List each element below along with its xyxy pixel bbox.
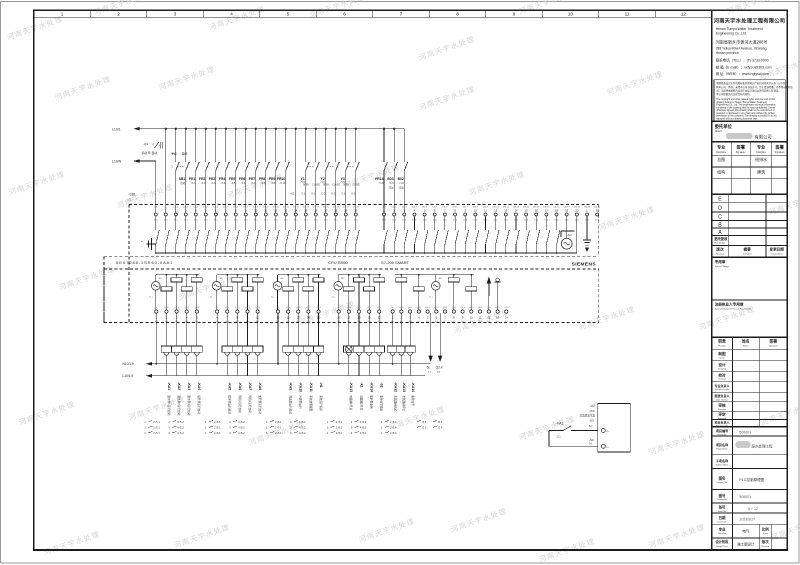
svg-text:DIa.10: DIa.10 — [273, 206, 280, 208]
svg-text:邮 箱（E-mail）：xxtyscl@163.com: 邮 箱（E-mail）：xxtyscl@163.com — [716, 64, 772, 69]
svg-text:D: D — [718, 206, 722, 212]
svg-text:20: 20 — [354, 209, 357, 213]
svg-text:-KA1: -KA1 — [556, 422, 563, 426]
svg-text:N.1: N.1 — [479, 321, 482, 323]
svg-text:Sheet No.: Sheet No. — [718, 510, 727, 513]
svg-text:污泥泵运行: 污泥泵运行 — [299, 395, 303, 409]
svg-text:次氯酸发生器: 次氯酸发生器 — [579, 413, 595, 417]
svg-text:N.1: N.1 — [426, 321, 429, 323]
svg-text:DIa.15: DIa.15 — [323, 206, 330, 208]
svg-text:审定: 审定 — [718, 412, 726, 417]
svg-text:DIa.9: DIa.9 — [263, 206, 269, 208]
svg-text:N.1: N.1 — [496, 321, 499, 323]
svg-text:/3.10: /3.10 — [280, 182, 286, 185]
svg-text:结构: 结构 — [717, 169, 725, 175]
svg-text:Discipline Leader: Discipline Leader — [715, 388, 730, 391]
svg-text:-KA6: -KA6 — [238, 382, 242, 390]
svg-text:2 /5.1: 2 /5.1 — [336, 426, 343, 430]
svg-text:-KA5: -KA5 — [228, 382, 232, 390]
svg-text:电磁阀2开关: 电磁阀2开关 — [359, 395, 363, 410]
svg-text:E: E — [718, 197, 722, 203]
svg-text:5: 5 — [287, 12, 290, 17]
svg-text:图号: 图号 — [719, 493, 726, 498]
svg-text:500001: 500001 — [739, 495, 751, 499]
svg-text:500001: 500001 — [739, 431, 751, 435]
svg-text:更改复核: 更改复核 — [714, 236, 728, 241]
svg-text:Discipline: Discipline — [716, 152, 727, 154]
svg-text:OPEN: OPEN — [323, 184, 330, 186]
svg-text:DIa.2: DIa.2 — [193, 206, 199, 208]
svg-text:Engineering Co., Ltd. The pro: Engineering Co., Ltd. The proprietary te… — [716, 104, 776, 107]
svg-text:专业负责人: 专业负责人 — [714, 383, 730, 388]
svg-text:C: C — [718, 214, 722, 220]
svg-text:-KA11: -KA11 — [309, 382, 313, 392]
svg-text:11: 11 — [484, 209, 487, 213]
svg-text:-SB1: -SB1 — [129, 193, 136, 197]
svg-text:潜水泵1运行启动: 潜水泵1运行启动 — [167, 395, 171, 416]
svg-text:/3.1: /3.1 — [191, 182, 196, 185]
svg-text:B03: B03 — [387, 177, 393, 181]
svg-text:N: N — [596, 209, 598, 213]
svg-text:/3.3: /3.3 — [211, 182, 216, 185]
svg-text:OPEN: OPEN — [343, 184, 350, 186]
svg-text:provided or disclosed to any t: provided or disclosed to any third party… — [716, 112, 775, 115]
svg-text:12: 12 — [487, 316, 490, 320]
svg-text:17: 17 — [545, 209, 548, 213]
svg-text:RD: RD — [439, 278, 443, 280]
svg-text:项目名称: 项目名称 — [716, 442, 729, 447]
svg-text:L10/1: L10/1 — [112, 127, 121, 131]
svg-text:C-3: C-3 — [341, 192, 346, 195]
svg-text:L10/1.9: L10/1.9 — [123, 374, 134, 378]
svg-text:FR6: FR6 — [239, 177, 246, 181]
svg-text:DIb.0: DIb.0 — [392, 206, 398, 208]
svg-text:2 /5.1: 2 /5.1 — [153, 431, 160, 435]
svg-text:电气: 电气 — [742, 529, 750, 534]
svg-text:签署: 签署 — [769, 339, 778, 344]
svg-text:N.1: N.1 — [417, 321, 420, 323]
svg-text:2 /5.1: 2 /5.1 — [275, 426, 282, 430]
svg-text:Engineering Co.,Ltd.: Engineering Co.,Ltd. — [716, 32, 747, 36]
svg-text:2 /5.1: 2 /5.1 — [275, 420, 282, 424]
svg-text:10: 10 — [470, 316, 473, 320]
svg-text:-KA13: -KA13 — [349, 382, 353, 392]
svg-text:Henan Tianyu Water Treatment: Henan Tianyu Water Treatment — [716, 27, 763, 31]
svg-text:Discipline: Discipline — [756, 152, 767, 154]
svg-text:18: 18 — [334, 209, 337, 213]
svg-text:FR1: FR1 — [189, 177, 196, 181]
svg-text:DIb.2: DIb.2 — [412, 206, 418, 208]
svg-text:部室负责人: 部室负责人 — [714, 393, 730, 398]
svg-text:河南省新乡市黄河大道288号: 河南省新乡市黄河大道288号 — [716, 38, 768, 44]
svg-text:Designed: Designed — [718, 368, 726, 370]
svg-text:联系电话（TEL）：(T) 3733 0000: 联系电话（TEL）：(T) 3733 0000 — [716, 58, 769, 63]
svg-text:签署: 签署 — [774, 144, 784, 151]
svg-text:图名: 图名 — [719, 476, 726, 481]
svg-text:4 /5.2: 4 /5.2 — [238, 431, 245, 435]
svg-text:12: 12 — [494, 209, 497, 213]
svg-text:次氯酸钠停止: 次氯酸钠停止 — [402, 395, 406, 411]
svg-text:Client: Client — [715, 129, 722, 133]
svg-text:专业: 专业 — [717, 144, 726, 151]
svg-text:DIa.6: DIa.6 — [233, 206, 239, 208]
svg-text:2 /5.1: 2 /5.1 — [153, 426, 160, 430]
svg-text:4 /5.2: 4 /5.2 — [360, 431, 367, 435]
svg-text:RD: RD — [220, 278, 224, 280]
svg-text:废水处理工程: 废水处理工程 — [752, 443, 773, 448]
svg-text:10: 10 — [568, 12, 574, 17]
svg-text:DIb.18: DIb.18 — [574, 206, 581, 208]
svg-text:校对: 校对 — [718, 372, 726, 377]
svg-text:Special Stamp: Special Stamp — [715, 265, 730, 268]
svg-text:审核: 审核 — [718, 403, 726, 408]
svg-text:-X2: -X2 — [290, 191, 295, 195]
svg-text:/1.8: /1.8 — [400, 182, 405, 185]
svg-text:Sum ject: Sum ject — [743, 253, 752, 256]
svg-text:变更日期: 变更日期 — [770, 247, 785, 252]
svg-text:职责: 职责 — [718, 339, 726, 344]
svg-text:/5.5: /5.5 — [422, 426, 427, 430]
svg-text:N.1: N.1 — [444, 321, 447, 323]
svg-text:-KA9: -KA9 — [289, 382, 293, 390]
svg-text:DIa.8: DIa.8 — [253, 206, 259, 208]
svg-text:FR10: FR10 — [277, 177, 285, 181]
svg-text:10: 10 — [474, 209, 477, 213]
svg-text:Project Name: Project Name — [716, 447, 727, 450]
svg-text:Drawn: Drawn — [719, 356, 724, 359]
svg-text:-KA14: -KA14 — [370, 382, 374, 392]
svg-text:O-1: O-1 — [311, 192, 316, 195]
svg-text:N.1: N.1 — [461, 321, 464, 323]
svg-text:-S3: -S3 — [589, 438, 594, 442]
svg-text:RD: RD — [159, 278, 163, 280]
svg-text:Q2.4: Q2.4 — [436, 366, 443, 370]
svg-text:RD: RD — [281, 278, 285, 280]
svg-text:电磁阀1开关: 电磁阀1开关 — [349, 395, 353, 410]
svg-text:给排水: 给排水 — [755, 156, 767, 162]
svg-text:N10/1.9: N10/1.9 — [123, 362, 134, 366]
svg-text:/3.8: /3.8 — [379, 182, 384, 185]
svg-text:子项名称: 子项名称 — [716, 458, 729, 463]
svg-text:13: 13 — [504, 209, 507, 213]
svg-text:设计: 设计 — [718, 362, 726, 367]
svg-text:网 址（WEB）：www.hgtyscl.com: 网 址（WEB）：www.hgtyscl.com — [716, 71, 769, 76]
svg-text:委托单位: 委托单位 — [715, 123, 733, 130]
svg-text:/3.7: /3.7 — [251, 182, 256, 185]
svg-text:Signature: Signature — [769, 345, 779, 348]
svg-text:8: 8 — [456, 12, 459, 17]
svg-text:1: 1 — [61, 12, 64, 17]
svg-text:4 /5.2: 4 /5.2 — [299, 420, 306, 424]
svg-text:本图纸及设计文件的版权和其他知识产权归河南天宇水处（以下简: 本图纸及设计文件的版权和其他知识产权归河南天宇水处（以下简 — [716, 81, 786, 85]
svg-text:14: 14 — [515, 209, 518, 213]
svg-text:permission of the company. The: permission of the company. The drawing i… — [716, 115, 777, 118]
svg-text:Project No.: Project No. — [717, 434, 727, 437]
svg-text:14: 14 — [505, 316, 508, 320]
svg-text:Revision: Revision — [762, 546, 769, 548]
svg-text:潜水泵2运行启动: 潜水泵2运行启动 — [177, 395, 181, 416]
svg-text:CLOSE: CLOSE — [332, 184, 340, 186]
svg-text:15: 15 — [304, 209, 307, 213]
svg-text:DIa.17: DIa.17 — [343, 206, 350, 208]
svg-text:DIb.7: DIb.7 — [463, 206, 469, 208]
svg-text:次氯酸钠启动: 次氯酸钠启动 — [394, 395, 398, 411]
svg-text:2 /5.1: 2 /5.1 — [153, 420, 160, 424]
svg-text:回流泵运行启动: 回流泵运行启动 — [289, 395, 293, 414]
svg-text:DIb.16: DIb.16 — [553, 206, 560, 208]
svg-text:RD: RD — [341, 278, 345, 280]
svg-text:摘要: 摘要 — [744, 247, 752, 252]
svg-text:/5.5: /5.5 — [422, 420, 427, 424]
svg-text:DIa.14: DIa.14 — [313, 206, 320, 208]
svg-text:11: 11 — [264, 209, 267, 213]
svg-text:DIb.20: DIb.20 — [594, 206, 601, 208]
svg-text:13: 13 — [496, 316, 499, 320]
svg-text:+: + — [141, 239, 143, 243]
svg-text:/3.4: /3.4 — [221, 182, 226, 185]
svg-text:2 /5.1: 2 /5.1 — [336, 420, 343, 424]
svg-text:姓名: 姓名 — [741, 339, 750, 344]
svg-text:C-2: C-2 — [321, 192, 326, 195]
svg-text:2 /5.1: 2 /5.1 — [214, 426, 221, 430]
svg-text:O-3: O-3 — [351, 192, 356, 195]
svg-text:4 /5.2: 4 /5.2 — [238, 420, 245, 424]
svg-text:Subitem Name: Subitem Name — [716, 464, 729, 467]
svg-text:2 /5.4: 2 /5.4 — [390, 426, 397, 430]
svg-text:专用章: 专用章 — [715, 259, 726, 264]
svg-text:Issued Date: Issued Date — [771, 253, 783, 256]
svg-text:式、手段将本图纸内容用于本设计项目以外的其他工程项目。: 式、手段将本图纸内容用于本设计项目以外的其他工程项目。 — [716, 88, 781, 92]
svg-text:浮球: 浮球 — [389, 185, 395, 189]
svg-text:2023/5/27: 2023/5/27 — [739, 518, 755, 522]
svg-text:-KA13: -KA13 — [402, 382, 406, 392]
svg-text:6 ÷ 12: 6 ÷ 12 — [748, 507, 758, 511]
svg-text:FR9: FR9 — [269, 177, 276, 181]
svg-text:Discipline: Discipline — [718, 533, 726, 535]
svg-text:DIb.13: DIb.13 — [523, 206, 530, 208]
svg-text:DIa.0: DIa.0 — [173, 206, 179, 208]
svg-text:日期: 日期 — [719, 515, 726, 520]
svg-text:/3.6: /3.6 — [241, 182, 246, 185]
svg-text:4 /5.2: 4 /5.2 — [360, 420, 367, 424]
svg-text:N.1: N.1 — [487, 321, 490, 323]
svg-text:张号: 张号 — [719, 505, 726, 510]
svg-text:B: B — [718, 222, 722, 228]
svg-text:16: 16 — [535, 209, 538, 213]
svg-text:Plot Stamp: Plot Stamp — [714, 242, 725, 245]
svg-text:220V: 220V — [589, 410, 595, 413]
svg-text:/1.6: /1.6 — [301, 181, 306, 184]
svg-text:版次: 版次 — [716, 247, 724, 252]
svg-text:19: 19 — [565, 209, 568, 213]
svg-text:-KA7: -KA7 — [248, 382, 252, 390]
svg-text:12: 12 — [681, 12, 687, 17]
svg-text:DIa.12: DIa.12 — [293, 206, 300, 208]
svg-text:19: 19 — [344, 209, 347, 213]
svg-text:/3.9: /3.9 — [271, 182, 276, 185]
svg-text:14: 14 — [294, 209, 297, 213]
svg-text:4 /5.2: 4 /5.2 — [360, 426, 367, 430]
svg-text:C-1: C-1 — [301, 192, 306, 195]
svg-text:风机2运行启动: 风机2运行启动 — [248, 395, 252, 413]
svg-text:CLOSE: CLOSE — [352, 184, 360, 186]
svg-text:17: 17 — [324, 209, 327, 213]
svg-text:DIa.7: DIa.7 — [243, 206, 249, 208]
svg-text:DIb.17: DIb.17 — [564, 206, 571, 208]
svg-text:Signature: Signature — [736, 151, 747, 154]
svg-text:手动 停 自动: 手动 停 自动 — [142, 151, 158, 155]
svg-text:DIb.5: DIb.5 — [442, 206, 448, 208]
svg-text:2: 2 — [117, 12, 120, 17]
svg-text:2 /5.1: 2 /5.1 — [214, 420, 221, 424]
svg-text:12: 12 — [274, 209, 277, 213]
svg-text:6: 6 — [343, 12, 346, 17]
svg-text:2 /5.1: 2 /5.1 — [336, 431, 343, 435]
svg-text:-KA3: -KA3 — [187, 382, 191, 390]
svg-text:河南天宇水处理工程有限公司: 河南天宇水处理工程有限公司 — [714, 17, 785, 25]
svg-text:CLOSE: CLOSE — [312, 184, 320, 186]
svg-text:10: 10 — [254, 209, 257, 213]
svg-text:DIb.12: DIb.12 — [513, 206, 520, 208]
svg-text:1M: 1M — [154, 206, 157, 208]
svg-text:DIb.14: DIb.14 — [533, 206, 540, 208]
svg-text:stamped with our drawing busin: stamped with our drawing business seal. — [716, 118, 758, 121]
svg-text:风机1运行启动: 风机1运行启动 — [238, 395, 242, 413]
svg-text:Scale: Scale — [763, 533, 768, 535]
svg-text:FR3: FR3 — [209, 177, 216, 181]
svg-text:DIb.15: DIb.15 — [543, 206, 550, 208]
svg-text:4: 4 — [230, 12, 233, 17]
svg-text:有限公司: 有限公司 — [755, 133, 772, 140]
svg-text:比例: 比例 — [762, 527, 769, 532]
svg-text:2 /5.4: 2 /5.4 — [390, 431, 397, 435]
svg-text:PLC控制原理图: PLC控制原理图 — [739, 477, 764, 482]
svg-text:DIb.19: DIb.19 — [584, 206, 591, 208]
svg-text:注册执业人专用章: 注册执业人专用章 — [715, 302, 744, 307]
svg-text:/3.2: /3.2 — [201, 182, 206, 185]
svg-text:N.1: N.1 — [435, 321, 438, 323]
svg-text:DIb.3: DIb.3 — [422, 206, 428, 208]
svg-text:专业: 专业 — [757, 144, 766, 151]
svg-text:称本公司）所有，未经本公司书面许可，禁止复制传播，也不得以任: 称本公司）所有，未经本公司书面许可，禁止复制传播，也不得以任何形 — [716, 85, 793, 89]
svg-text:-KA12: -KA12 — [394, 382, 398, 392]
svg-text:Drawing Title: Drawing Title — [717, 481, 728, 484]
svg-text:4 /5.2: 4 /5.2 — [238, 426, 245, 430]
svg-text:就地: 就地 — [180, 181, 186, 185]
svg-text:Issue Date: Issue Date — [717, 521, 726, 524]
svg-text:设计阶段: 设计阶段 — [716, 539, 730, 544]
svg-text:4 /5.2: 4 /5.2 — [177, 426, 184, 430]
svg-text:DIb.1: DIb.1 — [402, 206, 408, 208]
svg-text:/1.6: /1.6 — [321, 181, 326, 184]
svg-text:drawing belong to Henan Tianyu: drawing belong to Henan Tianyu Water Tre… — [716, 101, 767, 104]
svg-text:系统运行指示: 系统运行指示 — [319, 395, 323, 411]
svg-text:系统故障报警: 系统故障报警 — [309, 395, 313, 411]
svg-text:4 /5.2: 4 /5.2 — [177, 431, 184, 435]
svg-text:Dept. Director: Dept. Director — [716, 398, 728, 401]
svg-text:-S3: -S3 — [589, 419, 594, 423]
svg-text:FR14: FR14 — [375, 177, 383, 181]
svg-text:项目编号: 项目编号 — [716, 428, 728, 433]
svg-text:FR7: FR7 — [249, 177, 256, 181]
svg-text:The copyright and other relate: The copyright and other related rights a… — [716, 98, 776, 101]
svg-text:DIb.10: DIb.10 — [493, 206, 500, 208]
svg-text:Position: Position — [718, 345, 727, 348]
svg-text:DIa.3: DIa.3 — [203, 206, 209, 208]
svg-text:项目负责人: 项目负责人 — [714, 419, 730, 424]
svg-text:-KA10: -KA10 — [299, 382, 303, 392]
svg-text:A: A — [718, 230, 722, 236]
svg-text:/1.6: /1.6 — [341, 181, 346, 184]
svg-text:4 /5.2: 4 /5.2 — [299, 426, 306, 430]
svg-text:-HL: -HL — [319, 382, 323, 388]
svg-text:2 /5.4: 2 /5.4 — [390, 420, 397, 424]
svg-text:-KA4: -KA4 — [197, 382, 201, 390]
svg-text:4 /5.2: 4 /5.2 — [177, 420, 184, 424]
svg-text:FR5: FR5 — [229, 177, 236, 181]
svg-text:/3.1: /3.1 — [129, 198, 134, 202]
svg-text:/3.5: /3.5 — [231, 182, 236, 185]
svg-text:SB1: SB1 — [179, 177, 186, 181]
svg-text:-U2: -U2 — [590, 404, 596, 408]
svg-text:建筑: 建筑 — [757, 169, 765, 175]
svg-text:13: 13 — [284, 209, 287, 213]
svg-text:DIb.8: DIb.8 — [473, 206, 479, 208]
svg-text:11: 11 — [625, 12, 630, 17]
svg-text:3: 3 — [174, 12, 177, 17]
svg-text:18: 18 — [555, 209, 558, 213]
svg-text:N.1: N.1 — [470, 321, 473, 323]
svg-text:G-: G- — [607, 447, 610, 449]
svg-text:Design Phase: Design Phase — [716, 546, 728, 548]
svg-text:288 Yellow River Avenue, Xinxi: 288 Yellow River Avenue, Xinxiang, — [716, 46, 768, 50]
svg-text:/1.8: /1.8 — [389, 182, 394, 185]
svg-text:-X1: -X1 — [359, 382, 363, 387]
svg-text:O-2: O-2 — [331, 192, 336, 195]
svg-text:DIa.5: DIa.5 — [223, 206, 229, 208]
svg-text:本公司保留追究法律责任的权利。: 本公司保留追究法律责任的权利。 — [716, 92, 752, 96]
svg-text:浮球: 浮球 — [399, 185, 405, 189]
svg-text:潜水泵3运行启动: 潜水泵3运行启动 — [187, 395, 191, 416]
svg-text:DIa.13: DIa.13 — [303, 206, 310, 208]
svg-text:6L: 6L — [427, 366, 431, 370]
svg-text:DIa.16: DIa.16 — [333, 206, 340, 208]
svg-text:/5.1: /5.1 — [557, 436, 562, 439]
svg-text:提升泵运行启动: 提升泵运行启动 — [197, 395, 201, 414]
svg-text:15: 15 — [525, 209, 528, 213]
svg-text:/5.6: /5.6 — [438, 420, 443, 424]
svg-text:DIa.1: DIa.1 — [183, 206, 189, 208]
svg-text:备用信号: 备用信号 — [411, 395, 415, 406]
svg-text:Signature: Signature — [775, 151, 786, 154]
svg-text:FR2: FR2 — [199, 177, 206, 181]
svg-text:16: 16 — [314, 209, 317, 213]
svg-text:自动: 自动 — [182, 152, 188, 156]
svg-text:Henan province: Henan province — [716, 51, 739, 55]
svg-text:版次: 版次 — [762, 539, 769, 544]
svg-text:DIb.6: DIb.6 — [453, 206, 459, 208]
svg-text:/5.6: /5.6 — [438, 426, 443, 430]
svg-text:N.1: N.1 — [505, 321, 508, 323]
svg-text:DIa.11: DIa.11 — [283, 206, 290, 208]
svg-text:搅拌机运行启动: 搅拌机运行启动 — [228, 395, 232, 414]
svg-text:Special Stamp Of Person Regist: Special Stamp Of Person Registered — [715, 308, 752, 311]
svg-text:-KA14: -KA14 — [411, 382, 415, 392]
svg-text:2 /5.1: 2 /5.1 — [275, 431, 282, 435]
svg-text:DIa.4: DIa.4 — [213, 206, 219, 208]
svg-text:备用信号输出: 备用信号输出 — [380, 395, 384, 411]
svg-text:Revised: Revised — [716, 254, 725, 256]
